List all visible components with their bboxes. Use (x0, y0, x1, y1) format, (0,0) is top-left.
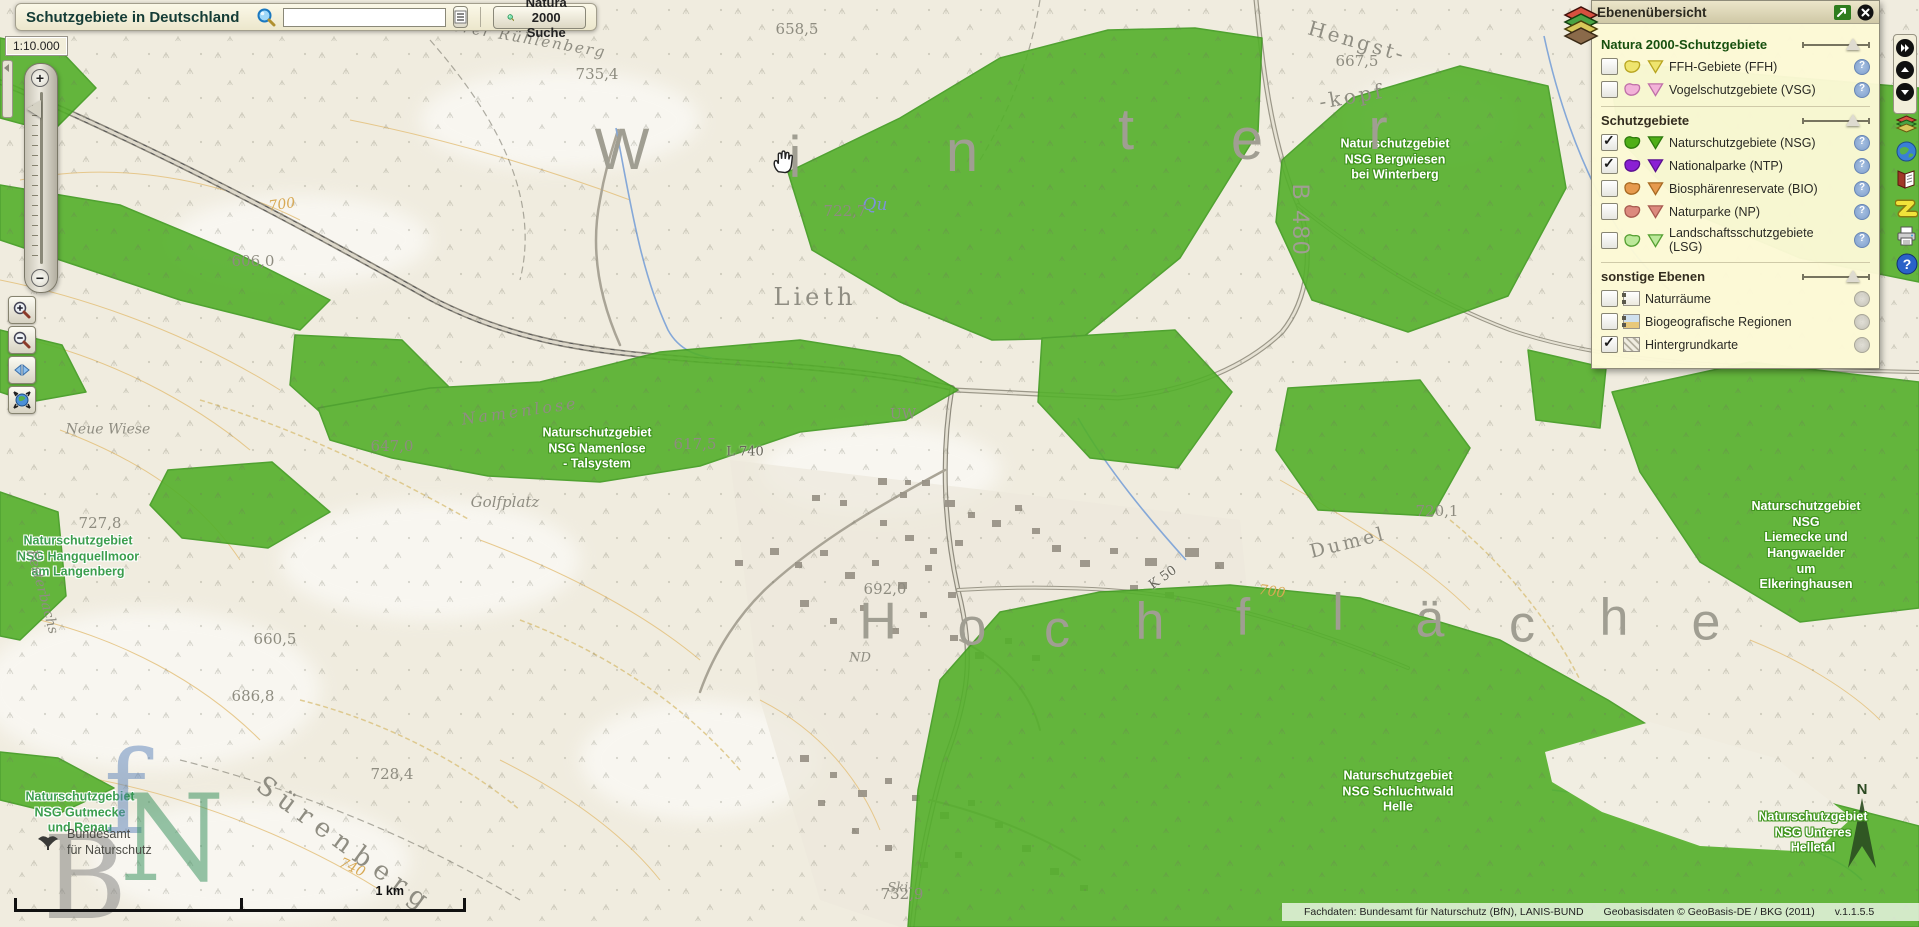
scale-bar-tick (240, 898, 243, 912)
layer-section-schutzgebiete: SchutzgebieteNaturschutzgebiete (NSG)Nat… (1601, 106, 1870, 254)
layer-info-icon[interactable] (1854, 135, 1870, 151)
section-header: Natura 2000-Schutzgebiete (1601, 37, 1870, 52)
search-input[interactable] (283, 8, 446, 27)
layer-area-swatch (1623, 81, 1642, 98)
panel-collapse-controls (1893, 34, 1917, 114)
layer-checkbox[interactable] (1601, 180, 1618, 197)
zoom-out-button[interactable] (31, 269, 49, 287)
layer-panel-header[interactable]: Ebenenübersicht (1592, 1, 1879, 24)
app-header: Schutzgebiete in Deutschland Natura 2000… (15, 3, 597, 31)
layer-stack-icon[interactable] (1561, 3, 1601, 45)
layer-area-swatch (1623, 232, 1642, 249)
layer-info-disabled-icon[interactable] (1854, 337, 1870, 353)
slider-thumb[interactable] (1846, 38, 1860, 50)
layer-checkbox[interactable] (1601, 157, 1618, 174)
layer-checkbox[interactable] (1601, 290, 1618, 307)
layer-row-landschaftsschutzgebiete-lsg[interactable]: Landschaftsschutzgebiete (LSG) (1601, 226, 1870, 254)
expand-panel-icon[interactable] (1834, 5, 1851, 20)
layer-area-swatch (1623, 58, 1642, 75)
map-tools (8, 296, 36, 414)
layer-row-naturräume[interactable]: Naturräume (1601, 290, 1870, 307)
section-title: sonstige Ebenen (1601, 269, 1705, 284)
layer-checkbox[interactable] (1601, 58, 1618, 75)
section-header: Schutzgebiete (1601, 113, 1870, 128)
full-extent-button[interactable] (8, 386, 36, 414)
layer-point-swatch (1647, 158, 1664, 173)
search-icon (256, 7, 276, 27)
layer-info-icon[interactable] (1854, 158, 1870, 174)
scroll-down-button[interactable] (1896, 83, 1914, 101)
layer-label: Landschaftsschutzgebiete (LSG) (1669, 226, 1849, 254)
layer-row-biosphärenreservate-bio[interactable]: Biosphärenreservate (BIO) (1601, 180, 1870, 197)
close-panel-icon[interactable] (1857, 4, 1874, 21)
layer-row-naturparke-np[interactable]: Naturparke (NP) (1601, 203, 1870, 220)
layer-section-natura-2000-schutzgebiete: Natura 2000-SchutzgebieteFFH-Gebiete (FF… (1601, 31, 1870, 98)
layer-label: Biogeografische Regionen (1645, 315, 1792, 329)
eagle-icon (36, 832, 60, 852)
opacity-slider[interactable] (1802, 270, 1870, 284)
layer-point-swatch (1647, 204, 1664, 219)
svg-text:?: ? (1902, 256, 1911, 272)
layer-info-icon[interactable] (1854, 82, 1870, 98)
fast-forward-icon (1899, 42, 1911, 54)
layer-area-swatch (1623, 157, 1642, 174)
layer-checkbox[interactable] (1601, 134, 1618, 151)
help-icon[interactable]: ? (1896, 253, 1918, 275)
bfn-logo: Bundesamt für Naturschutz (36, 826, 152, 859)
logo-line2: für Naturschutz (67, 842, 152, 858)
zoom-ticks (32, 96, 38, 260)
attribution-bar: Fachdaten: Bundesamt für Naturschutz (Bf… (1282, 903, 1919, 921)
layer-checkbox[interactable] (1601, 313, 1618, 330)
layer-label: Nationalparke (NTP) (1669, 159, 1783, 173)
layer-label: Hintergrundkarte (1645, 338, 1738, 352)
extent-history-button[interactable] (8, 356, 36, 384)
natura-2000-search-button[interactable]: Natura 2000 Suche (493, 6, 586, 29)
layer-info-icon[interactable] (1854, 59, 1870, 75)
magnifier-plus-icon (12, 300, 32, 320)
layer-point-swatch (1647, 233, 1664, 248)
globe-extent-icon (11, 389, 33, 411)
measure-tool-icon[interactable] (1895, 197, 1918, 219)
slider-thumb[interactable] (1846, 270, 1860, 282)
layer-info-icon[interactable] (1854, 204, 1870, 220)
section-title: Natura 2000-Schutzgebiete (1601, 37, 1767, 52)
layer-point-swatch (1647, 181, 1664, 196)
print-icon[interactable] (1895, 225, 1918, 247)
layer-checkbox[interactable] (1601, 232, 1618, 249)
layer-row-vogelschutzgebiete-vsg[interactable]: Vogelschutzgebiete (VSG) (1601, 81, 1870, 98)
scale-bar-label: 1 km (376, 884, 405, 898)
green-search-icon (507, 9, 515, 26)
layer-label: Biosphärenreservate (BIO) (1669, 182, 1818, 196)
layer-info-icon[interactable] (1854, 181, 1870, 197)
collapse-panel-button[interactable] (1896, 39, 1914, 57)
zoom-box-in-button[interactable] (8, 296, 36, 324)
layer-info-icon[interactable] (1854, 232, 1870, 248)
scale-bar: 1 km (14, 896, 466, 914)
side-toolbar: ? (1895, 114, 1918, 275)
natura-button-label: Natura 2000 Suche (520, 0, 572, 40)
layer-checkbox[interactable] (1601, 81, 1618, 98)
list-icon (454, 10, 467, 24)
layer-row-hintergrundkarte[interactable]: Hintergrundkarte (1601, 336, 1870, 353)
layer-row-nationalparke-ntp[interactable]: Nationalparke (NTP) (1601, 157, 1870, 174)
layer-section-sonstige-ebenen: sonstige EbenenNaturräumeBiogeografische… (1601, 262, 1870, 353)
layer-panel: Ebenenübersicht Natura 2000-Schutzgebiet… (1591, 0, 1880, 369)
layer-info-disabled-icon[interactable] (1854, 291, 1870, 307)
zoom-in-button[interactable] (31, 69, 49, 87)
naturraeume-icon (1623, 291, 1640, 306)
layer-label: Naturräume (1645, 292, 1711, 306)
scale-bar-tick (14, 898, 17, 912)
layer-label: FFH-Gebiete (FFH) (1669, 60, 1777, 74)
layer-row-naturschutzgebiete-nsg[interactable]: Naturschutzgebiete (NSG) (1601, 134, 1870, 151)
layer-point-swatch (1647, 59, 1664, 74)
result-list-button[interactable] (453, 6, 468, 28)
zoom-box-out-button[interactable] (8, 326, 36, 354)
layer-checkbox[interactable] (1601, 203, 1618, 220)
biogeo-icon (1623, 314, 1640, 329)
legend-book-icon[interactable] (1895, 169, 1918, 191)
layer-label: Vogelschutzgebiete (VSG) (1669, 83, 1816, 97)
layer-info-disabled-icon[interactable] (1854, 314, 1870, 330)
layer-row-ffh-gebiete-ffh[interactable]: FFH-Gebiete (FFH) (1601, 58, 1870, 75)
magnifier-minus-icon (12, 330, 32, 350)
scale-indicator: 1:10.000 (6, 37, 67, 55)
chevron-down-icon (1899, 86, 1911, 98)
layer-point-swatch (1647, 82, 1664, 97)
slider-thumb[interactable] (1846, 114, 1860, 126)
opacity-slider[interactable] (1802, 38, 1870, 52)
hand-cursor-icon (770, 146, 796, 179)
layer-area-swatch (1623, 134, 1642, 151)
attribution-fachdaten: Fachdaten: Bundesamt für Naturschutz (Bf… (1304, 906, 1584, 918)
zoom-slider-thumb[interactable] (27, 100, 41, 118)
attribution-version: v.1.1.5.5 (1835, 906, 1875, 918)
layer-sections: Natura 2000-SchutzgebieteFFH-Gebiete (FF… (1592, 24, 1879, 368)
layer-row-biogeografische-regionen[interactable]: Biogeografische Regionen (1601, 313, 1870, 330)
layer-label: Naturparke (NP) (1669, 205, 1760, 219)
layers-tool-icon[interactable] (1895, 114, 1918, 134)
mini-slider[interactable] (2, 60, 13, 118)
section-header: sonstige Ebenen (1601, 269, 1870, 284)
layer-panel-title: Ebenenübersicht (1597, 5, 1828, 20)
globe-tool-icon[interactable] (1895, 140, 1918, 163)
attribution-geobasis: Geobasisdaten © GeoBasis-DE / BKG (2011) (1604, 906, 1815, 918)
layer-area-swatch (1623, 180, 1642, 197)
scale-bar-tick (463, 898, 466, 912)
back-forward-arrows-icon (12, 360, 32, 380)
layer-point-swatch (1647, 135, 1664, 150)
logo-line1: Bundesamt (67, 826, 152, 842)
zoom-slider[interactable] (24, 63, 58, 293)
section-title: Schutzgebiete (1601, 113, 1689, 128)
layer-label: Naturschutzgebiete (NSG) (1669, 136, 1816, 150)
app-title: Schutzgebiete in Deutschland (26, 9, 239, 26)
chevron-up-icon (1899, 64, 1911, 76)
hatch-icon (1623, 337, 1640, 352)
layer-checkbox[interactable] (1601, 336, 1618, 353)
layer-area-swatch (1623, 203, 1642, 220)
scroll-up-button[interactable] (1896, 61, 1914, 79)
opacity-slider[interactable] (1802, 114, 1870, 128)
